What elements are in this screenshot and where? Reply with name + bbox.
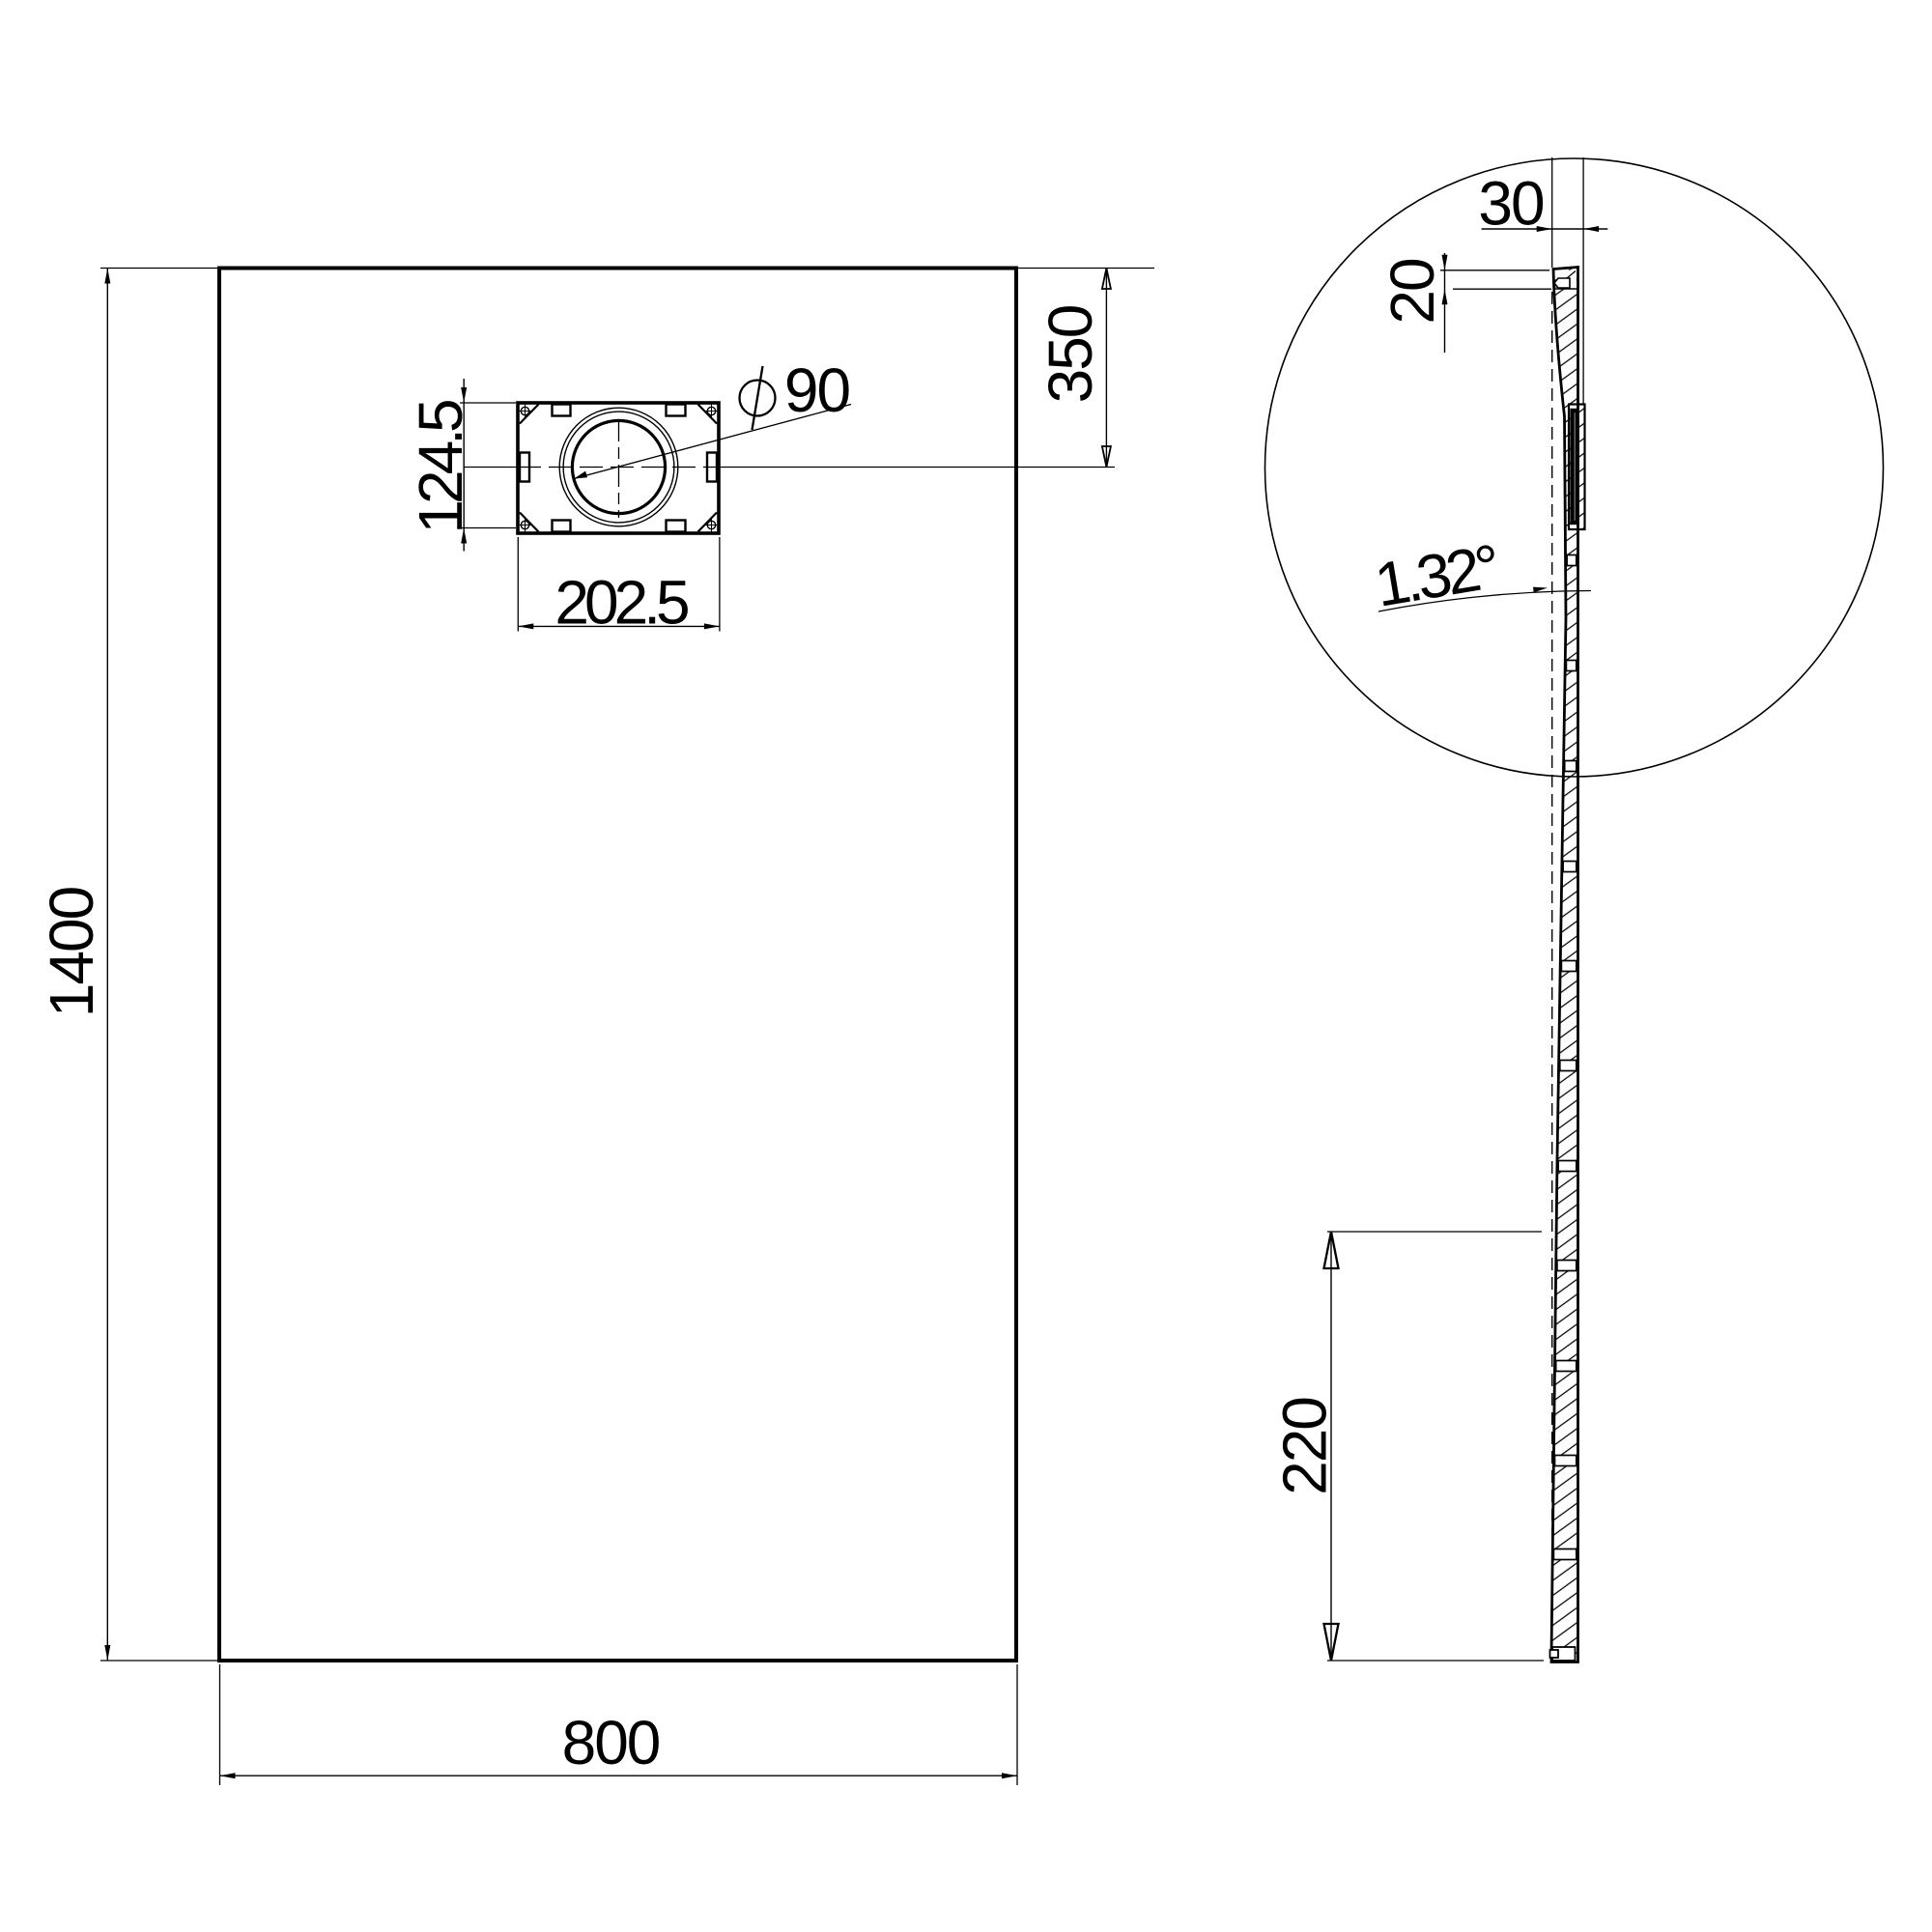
svg-text:30: 30	[1478, 169, 1544, 239]
svg-text:1400: 1400	[37, 887, 106, 1017]
svg-text:800: 800	[562, 1708, 660, 1777]
svg-text:350: 350	[1036, 305, 1105, 403]
svg-text:220: 220	[1270, 1398, 1340, 1495]
svg-text:20: 20	[1378, 259, 1447, 325]
svg-text:202.5: 202.5	[554, 568, 688, 638]
svg-text:90: 90	[784, 355, 850, 425]
svg-text:124.5: 124.5	[406, 401, 475, 534]
